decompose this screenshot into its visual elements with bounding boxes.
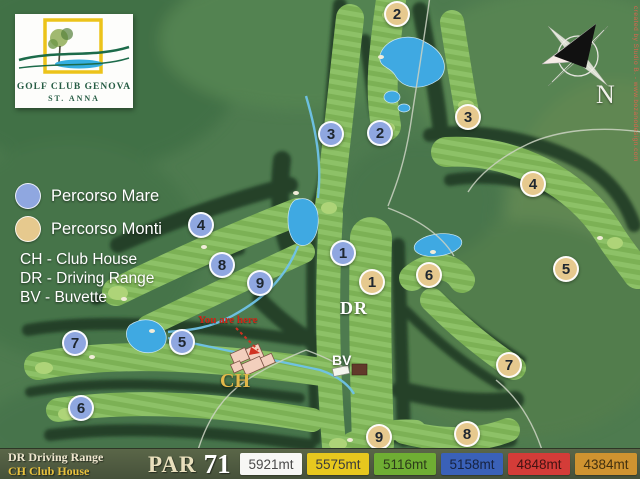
hole-marker-mare-7: 7 [62,330,88,356]
course-map: GOLF CLUB GENOVA ST. ANNA Percorso Mare … [0,0,640,448]
monti-course-swatch [15,216,41,242]
hole-marker-mare-3: 3 [318,121,344,147]
north-label: N [596,80,615,110]
driving-range-label: DR [340,298,368,319]
club-name: GOLF CLUB GENOVA [15,82,133,92]
footer-ch-line: CH Club House [8,464,103,478]
buvette-label: BV [332,352,351,368]
mare-course-swatch [15,183,41,209]
hole-marker-mare-5: 5 [169,329,195,355]
club-logo: GOLF CLUB GENOVA ST. ANNA [15,14,133,108]
footer-bar: DR Driving Range CH Club House PAR 71 59… [0,448,640,479]
monti-course-label: Percorso Monti [51,220,162,239]
footer-abbreviations: DR Driving Range CH Club House [8,450,103,478]
legend-dr: DR - Driving Range [20,269,154,288]
club-logo-art [15,14,133,80]
hole-marker-monti-9: 9 [366,424,392,450]
hole-marker-monti-2: 2 [384,1,410,27]
par-value: 71 [204,449,231,479]
hole-marker-mare-6: 6 [68,395,94,421]
footer-dr-line: DR Driving Range [8,450,103,464]
club-house-label: CH [220,370,250,393]
tee-distance-blue: 5158mt [441,453,503,475]
par-block: PAR 71 [148,449,231,479]
hole-marker-monti-1: 1 [359,269,385,295]
golf-course-map-page: GOLF CLUB GENOVA ST. ANNA Percorso Mare … [0,0,640,479]
tee-distance-red: 4848mt [508,453,570,475]
club-subname: ST. ANNA [15,94,133,103]
legend-bv: BV - Buvette [20,288,154,307]
hole-marker-monti-3: 3 [455,104,481,130]
logo-tree-icon [48,28,73,62]
legend-row-monti: Percorso Monti [15,216,162,242]
hole-marker-monti-6: 6 [416,262,442,288]
legend-abbreviations: CH - Club House DR - Driving Range BV - … [20,250,154,307]
tee-distance-green: 5116mt [374,453,436,475]
design-credit: created by Studio B. - www.bozanodesign.… [632,6,639,162]
hole-marker-monti-8: 8 [454,421,480,447]
hole-marker-monti-4: 4 [520,171,546,197]
hole-marker-mare-4: 4 [188,212,214,238]
tee-distance-orange: 4384mt [575,453,637,475]
legend-ch: CH - Club House [20,250,154,269]
tee-distances: 5921mt5575mt5116mt5158mt4848mt4384mt [240,453,637,475]
tee-distance-white: 5921mt [240,453,302,475]
legend-row-mare: Percorso Mare [15,183,159,209]
tee-distance-yellow: 5575mt [307,453,369,475]
hole-marker-mare-1: 1 [330,240,356,266]
maintenance-building [352,364,367,375]
hole-marker-monti-5: 5 [553,256,579,282]
hole-marker-mare-8: 8 [209,252,235,278]
mare-course-label: Percorso Mare [51,187,159,206]
par-label: PAR [148,452,197,478]
hole-marker-mare-9: 9 [247,270,273,296]
you-are-here-label: You are here [198,314,257,326]
hole-marker-mare-2: 2 [367,120,393,146]
hole-marker-monti-7: 7 [496,352,522,378]
